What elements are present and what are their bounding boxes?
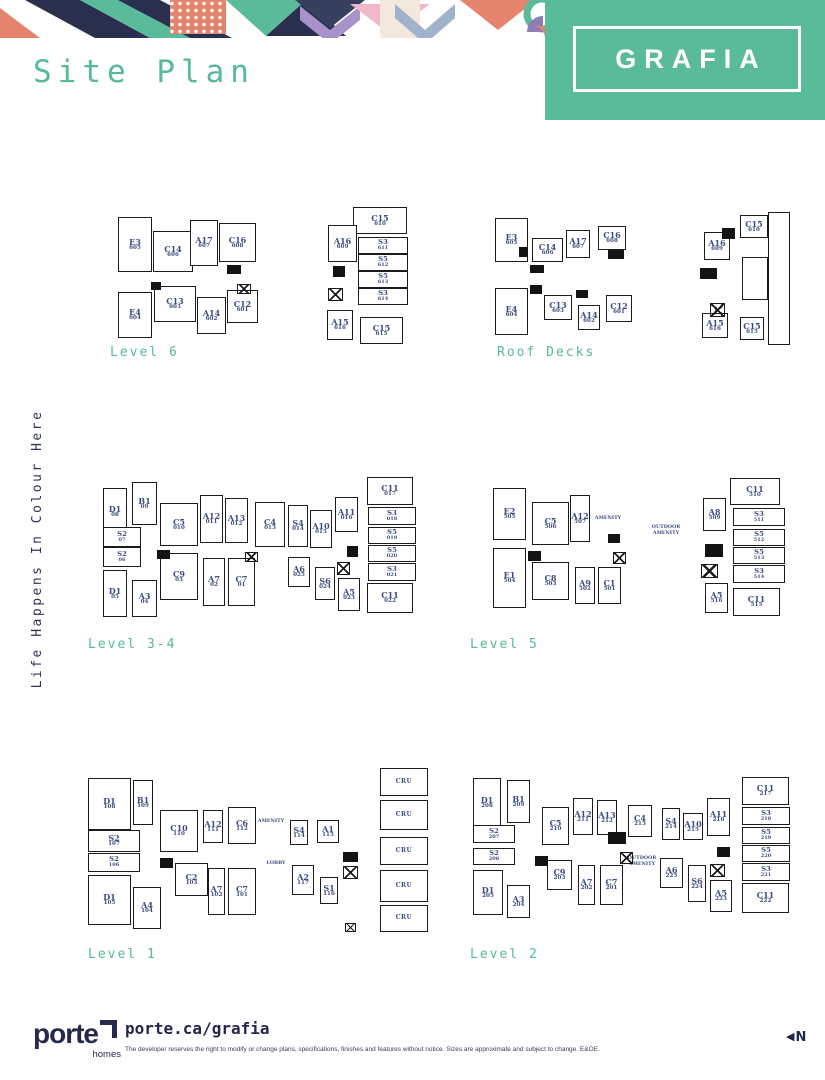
- area-label: AMENITY: [592, 508, 624, 528]
- unit-box: B1209: [507, 780, 530, 823]
- porte-logo-corner-icon: [100, 1020, 117, 1038]
- elevator-marker: [343, 852, 358, 862]
- stair-marker: [613, 552, 626, 564]
- porte-logo-text: porte: [33, 1020, 98, 1048]
- unit-box: S5219: [742, 827, 790, 844]
- unit-box: C5506: [532, 502, 569, 545]
- unit-box: A6025: [288, 557, 310, 587]
- unit-box: C15615: [740, 317, 764, 340]
- unit-box: A12211: [573, 798, 593, 835]
- unit-box: C14606: [532, 238, 563, 262]
- unit-box: C9203: [547, 860, 572, 890]
- unit-box: B1109: [133, 780, 153, 825]
- unit-box: C15610: [740, 215, 768, 238]
- unit-box: A4104: [133, 887, 161, 929]
- unit-box: S3018: [368, 507, 416, 525]
- elevator-marker: [717, 847, 730, 857]
- unit-box: C12601: [606, 295, 632, 322]
- plan-label-level-5: Level 5: [470, 637, 539, 652]
- unit-box: C13603: [154, 286, 196, 322]
- unit-box: A7202: [578, 865, 595, 905]
- plan-level-5: E2505C5506A12507E1504C8503A9502C1501C115…: [465, 468, 825, 630]
- unit-box: C1501: [598, 567, 621, 604]
- website-url: porte.ca/grafia: [125, 1019, 270, 1038]
- area-label: OUTDOOR AMENITY: [630, 853, 654, 869]
- unit-box: A10015: [310, 510, 332, 548]
- unit-box: C11022: [367, 583, 413, 613]
- north-triangle-icon: ◀: [786, 1030, 794, 1043]
- unit-box: S6224: [688, 865, 706, 902]
- unit-box: S5613: [358, 271, 408, 288]
- unit-box: S5019: [368, 527, 416, 544]
- stair-marker: [345, 923, 356, 932]
- unit-box: C15615: [360, 317, 403, 344]
- unit-box: B109: [132, 482, 157, 525]
- elevator-marker: [333, 266, 345, 277]
- unit-box: C11515: [733, 588, 780, 616]
- plan-label-level-6: Level 6: [110, 345, 179, 360]
- area-label: AMENITY: [258, 816, 284, 826]
- plan-label-level-3-4: Level 3-4: [88, 637, 176, 652]
- stair-marker: [237, 284, 251, 294]
- unit-box: D105: [103, 570, 127, 617]
- elevator-marker: [227, 265, 241, 274]
- elevator-marker: [700, 268, 717, 279]
- unit-box: S2207: [473, 825, 515, 843]
- unit-box: C8503: [532, 562, 569, 600]
- unit-box: C7101: [228, 868, 256, 915]
- unit-box: C11017: [367, 477, 413, 505]
- unit-box: A8509: [703, 498, 726, 531]
- unit-box: A3204: [507, 885, 530, 918]
- stair-marker: [328, 288, 343, 301]
- elevator-marker: [519, 247, 528, 257]
- unit-box: C701: [228, 558, 255, 606]
- unit-box: S5612: [358, 254, 408, 271]
- unit-box: A13012: [225, 498, 248, 543]
- unit-box: A13212: [597, 800, 617, 835]
- unit-box: S206: [103, 547, 141, 567]
- stair-marker: [701, 564, 718, 578]
- unit-box: CRU: [380, 870, 428, 902]
- unit-box: S4114: [290, 820, 308, 845]
- site-plan-page: GRAFIA Site Plan Life Happens In Colour …: [0, 0, 825, 1080]
- unit-box: S207: [103, 527, 141, 547]
- unit-box: S5513: [733, 547, 785, 564]
- unit-box: A12507: [570, 495, 590, 542]
- elevator-marker: [151, 282, 161, 290]
- stair-marker: [343, 866, 358, 879]
- unit-box: A14602: [197, 297, 226, 334]
- unit-box: C11222: [742, 883, 789, 913]
- unit-box: A17607: [566, 230, 590, 258]
- elevator-marker: [535, 856, 548, 866]
- unit-box: C16608: [598, 226, 626, 250]
- plan-level-2: D1208B1209S2207S2206D1205A3204C5210A1221…: [460, 758, 825, 941]
- unit-box: E3605: [118, 217, 152, 272]
- deck-outline: [768, 212, 790, 345]
- plan-label-level-2: Level 2: [470, 947, 539, 962]
- unit-box: C14606: [153, 231, 193, 272]
- stair-marker: [710, 864, 725, 877]
- porte-logo-sub: homes: [33, 1049, 123, 1060]
- unit-box: S3218: [742, 807, 790, 825]
- unit-box: S5512: [733, 529, 785, 546]
- elevator-marker: [530, 285, 542, 294]
- unit-box: CRU: [380, 837, 428, 865]
- elevator-marker: [608, 534, 620, 543]
- unit-box: A6225: [660, 858, 683, 888]
- disclaimer-text: The developer reserves the right to modi…: [125, 1046, 695, 1054]
- unit-box: D1108: [88, 778, 131, 830]
- unit-box: A17607: [190, 220, 218, 266]
- unit-box: S3511: [733, 508, 785, 526]
- unit-box: A12011: [200, 495, 223, 543]
- unit-box: S3021: [368, 563, 416, 581]
- plan-level-1: D1108B1109S2107S2106D1105A4104C10110A121…: [75, 758, 460, 941]
- unit-box: CRU: [380, 768, 428, 796]
- unit-box: C4013: [255, 502, 285, 547]
- unit-box: A11016: [335, 497, 358, 532]
- unit-box: D1105: [88, 875, 131, 925]
- unit-box: E1504: [493, 548, 526, 608]
- unit-box: S1116: [320, 877, 338, 904]
- unit-box: C2103: [175, 863, 208, 896]
- unit-box: S2107: [88, 830, 140, 852]
- unit-box: S2106: [88, 853, 140, 872]
- unit-box: C16608: [219, 223, 256, 262]
- elevator-marker: [608, 832, 626, 844]
- unit-box: S4014: [288, 505, 308, 547]
- stair-marker: [620, 852, 633, 864]
- elevator-marker: [157, 550, 170, 559]
- unit-box: A1115: [317, 820, 339, 843]
- stair-marker: [710, 303, 725, 317]
- north-letter: N: [795, 1030, 806, 1045]
- elevator-marker: [608, 250, 624, 259]
- elevator-marker: [530, 265, 544, 273]
- unit-box: C15610: [353, 207, 407, 234]
- unit-box: S3221: [742, 863, 790, 881]
- unit-box: S6024: [315, 567, 335, 600]
- unit-box: C12601: [227, 290, 258, 323]
- unit-box: A16609: [328, 225, 357, 262]
- unit-box: A9502: [575, 567, 595, 604]
- unit-box: C7201: [600, 865, 623, 905]
- unit-box: D1205: [473, 870, 503, 915]
- unit-box: C4213: [628, 805, 652, 837]
- unit-box: A15616: [327, 310, 353, 340]
- unit-box: A12111: [203, 810, 223, 843]
- elevator-marker: [528, 551, 541, 561]
- unit-box: S5020: [368, 545, 416, 562]
- unit-box: A5223: [710, 880, 732, 912]
- unit-box: D1208: [473, 778, 501, 828]
- unit-box: C11217: [742, 777, 789, 805]
- unit-box: S3611: [358, 237, 408, 254]
- elevator-marker: [722, 228, 735, 239]
- unit-box: E2505: [493, 488, 526, 540]
- area-label: OUTDOOR AMENITY: [643, 520, 689, 540]
- elevator-marker: [705, 544, 723, 557]
- unit-box: A5516: [705, 583, 728, 613]
- unit-box: A7102: [208, 868, 225, 915]
- unit-box: C10110: [160, 810, 198, 852]
- plan-level-6: E3605C14606A17607C16608E4604C13603A14602…: [105, 200, 435, 345]
- north-arrow: ◀N: [786, 1030, 806, 1045]
- deck-outline: [742, 257, 768, 300]
- plan-roof-decks: E3605C14606A17607C16608E4604C13603A14602…: [488, 200, 810, 345]
- unit-box: S3614: [358, 288, 408, 305]
- unit-box: C13603: [544, 295, 572, 320]
- area-label: LOBBY: [265, 858, 287, 867]
- elevator-marker: [160, 858, 173, 868]
- unit-box: S4214: [662, 808, 680, 840]
- unit-box: A10215: [683, 813, 703, 840]
- stair-marker: [245, 552, 258, 562]
- unit-box: CRU: [380, 800, 428, 830]
- unit-box: A11216: [707, 798, 730, 836]
- plans-canvas: E3605C14606A17607C16608E4604C13603A14602…: [0, 0, 825, 1080]
- unit-box: E4604: [118, 292, 152, 338]
- unit-box: S2206: [473, 848, 515, 865]
- unit-box: C6112: [228, 807, 256, 844]
- elevator-marker: [576, 290, 588, 298]
- unit-box: A14602: [578, 305, 600, 330]
- plan-level-3-4: D108B109S207S206D105A304C5010A12011A1301…: [85, 468, 460, 630]
- unit-box: E4604: [495, 288, 528, 335]
- porte-logo: porte homes: [33, 1020, 123, 1060]
- unit-box: A304: [132, 580, 157, 617]
- unit-box: C5010: [160, 503, 198, 546]
- unit-box: S5220: [742, 845, 790, 862]
- stair-marker: [337, 562, 350, 575]
- unit-box: S3514: [733, 565, 785, 583]
- plan-label-level-1: Level 1: [88, 947, 157, 962]
- unit-box: C903: [160, 553, 198, 600]
- unit-box: A5023: [338, 578, 360, 611]
- unit-box: C5210: [542, 807, 569, 845]
- unit-box: A702: [203, 558, 225, 606]
- unit-box: A2117: [292, 865, 314, 895]
- unit-box: CRU: [380, 905, 428, 932]
- plan-label-roof-decks: Roof Decks: [497, 345, 595, 360]
- unit-box: C11510: [730, 478, 780, 505]
- elevator-marker: [347, 546, 358, 557]
